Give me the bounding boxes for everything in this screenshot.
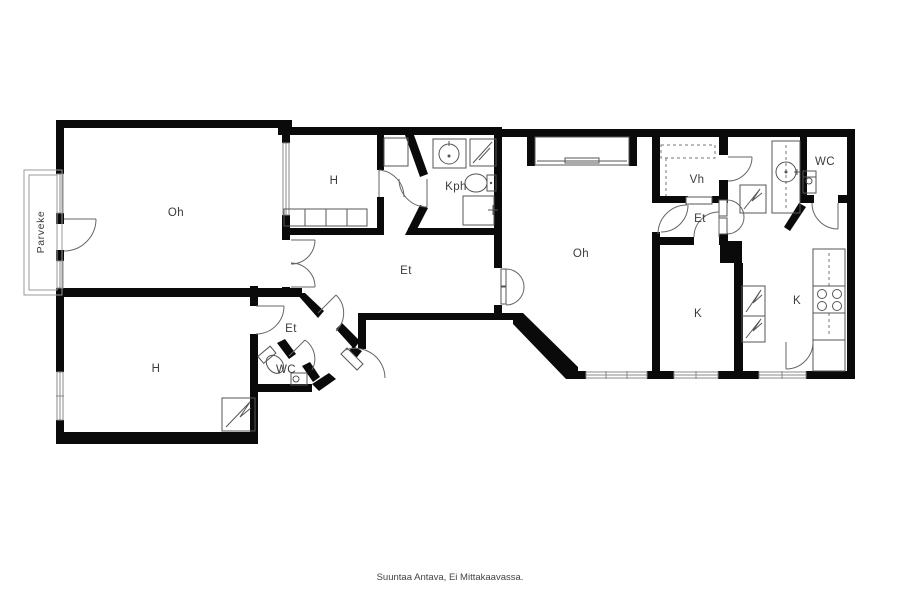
room-label-kph: Kph: [445, 181, 467, 193]
kitchen-counter-sink: [772, 141, 800, 213]
window-h-bottom: [56, 372, 64, 420]
door-entrance: [341, 348, 385, 378]
footer-note: Suuntaa Antava, Ei Mittakaavassa.: [377, 572, 524, 583]
room-labels: Oh H Kph Et Oh Vh Et K K WC H Et WC Parv…: [35, 156, 835, 376]
floor-plan-page: Oh H Kph Et Oh Vh Et K K WC H Et WC Parv…: [0, 0, 900, 600]
kph-toilet: [465, 174, 496, 192]
room-label-et-small: Et: [285, 323, 297, 335]
door-wc-right: [812, 203, 838, 229]
room-label-k-left: K: [694, 308, 702, 320]
room-label-vh: Vh: [690, 174, 705, 186]
oh-right-recess: [535, 137, 629, 165]
h-top-closets: [284, 209, 367, 226]
kph-sink: [433, 139, 466, 168]
door-balcony: [64, 219, 96, 251]
door-kph: [399, 179, 427, 207]
room-label-wc-small: WC: [276, 364, 296, 376]
corridor-appliance: [740, 185, 766, 213]
walls: [56, 120, 855, 444]
vestibule-closet: [384, 138, 408, 166]
window-bottom-k-right: [759, 371, 806, 379]
door-k-right-closet: [786, 342, 813, 369]
k-right-closet: [813, 340, 845, 371]
floor-plan-svg: Oh H Kph Et Oh Vh Et K K WC H Et WC Parv…: [0, 0, 900, 600]
kph-shower: [470, 139, 496, 166]
room-label-h-top: H: [330, 175, 339, 187]
kph-washing-machine: [463, 196, 498, 225]
window-oh-h-partition: [283, 143, 289, 215]
room-label-oh-left: Oh: [168, 207, 184, 219]
room-label-oh-right: Oh: [573, 248, 589, 260]
door-h-bottom: [256, 306, 284, 334]
door-double-oh-left: [291, 240, 315, 287]
fridge-freezer: [742, 286, 765, 342]
vh-closet: [661, 145, 715, 196]
room-label-h-bottom: H: [152, 363, 161, 375]
window-bottom-k-left: [674, 371, 718, 379]
room-label-et-right: Et: [694, 213, 706, 225]
door-double-oh-right: [501, 269, 524, 305]
room-label-k-right: K: [793, 295, 801, 307]
room-label-wc-right: WC: [815, 156, 835, 168]
room-label-et-main: Et: [400, 265, 412, 277]
door-corridor-top: [728, 157, 752, 181]
door-oh-et-right: [661, 205, 688, 232]
room-label-parveke: Parveke: [35, 211, 47, 254]
window-bottom-oh: [586, 371, 647, 379]
stove: [813, 286, 845, 313]
door-h-top: [379, 170, 404, 197]
